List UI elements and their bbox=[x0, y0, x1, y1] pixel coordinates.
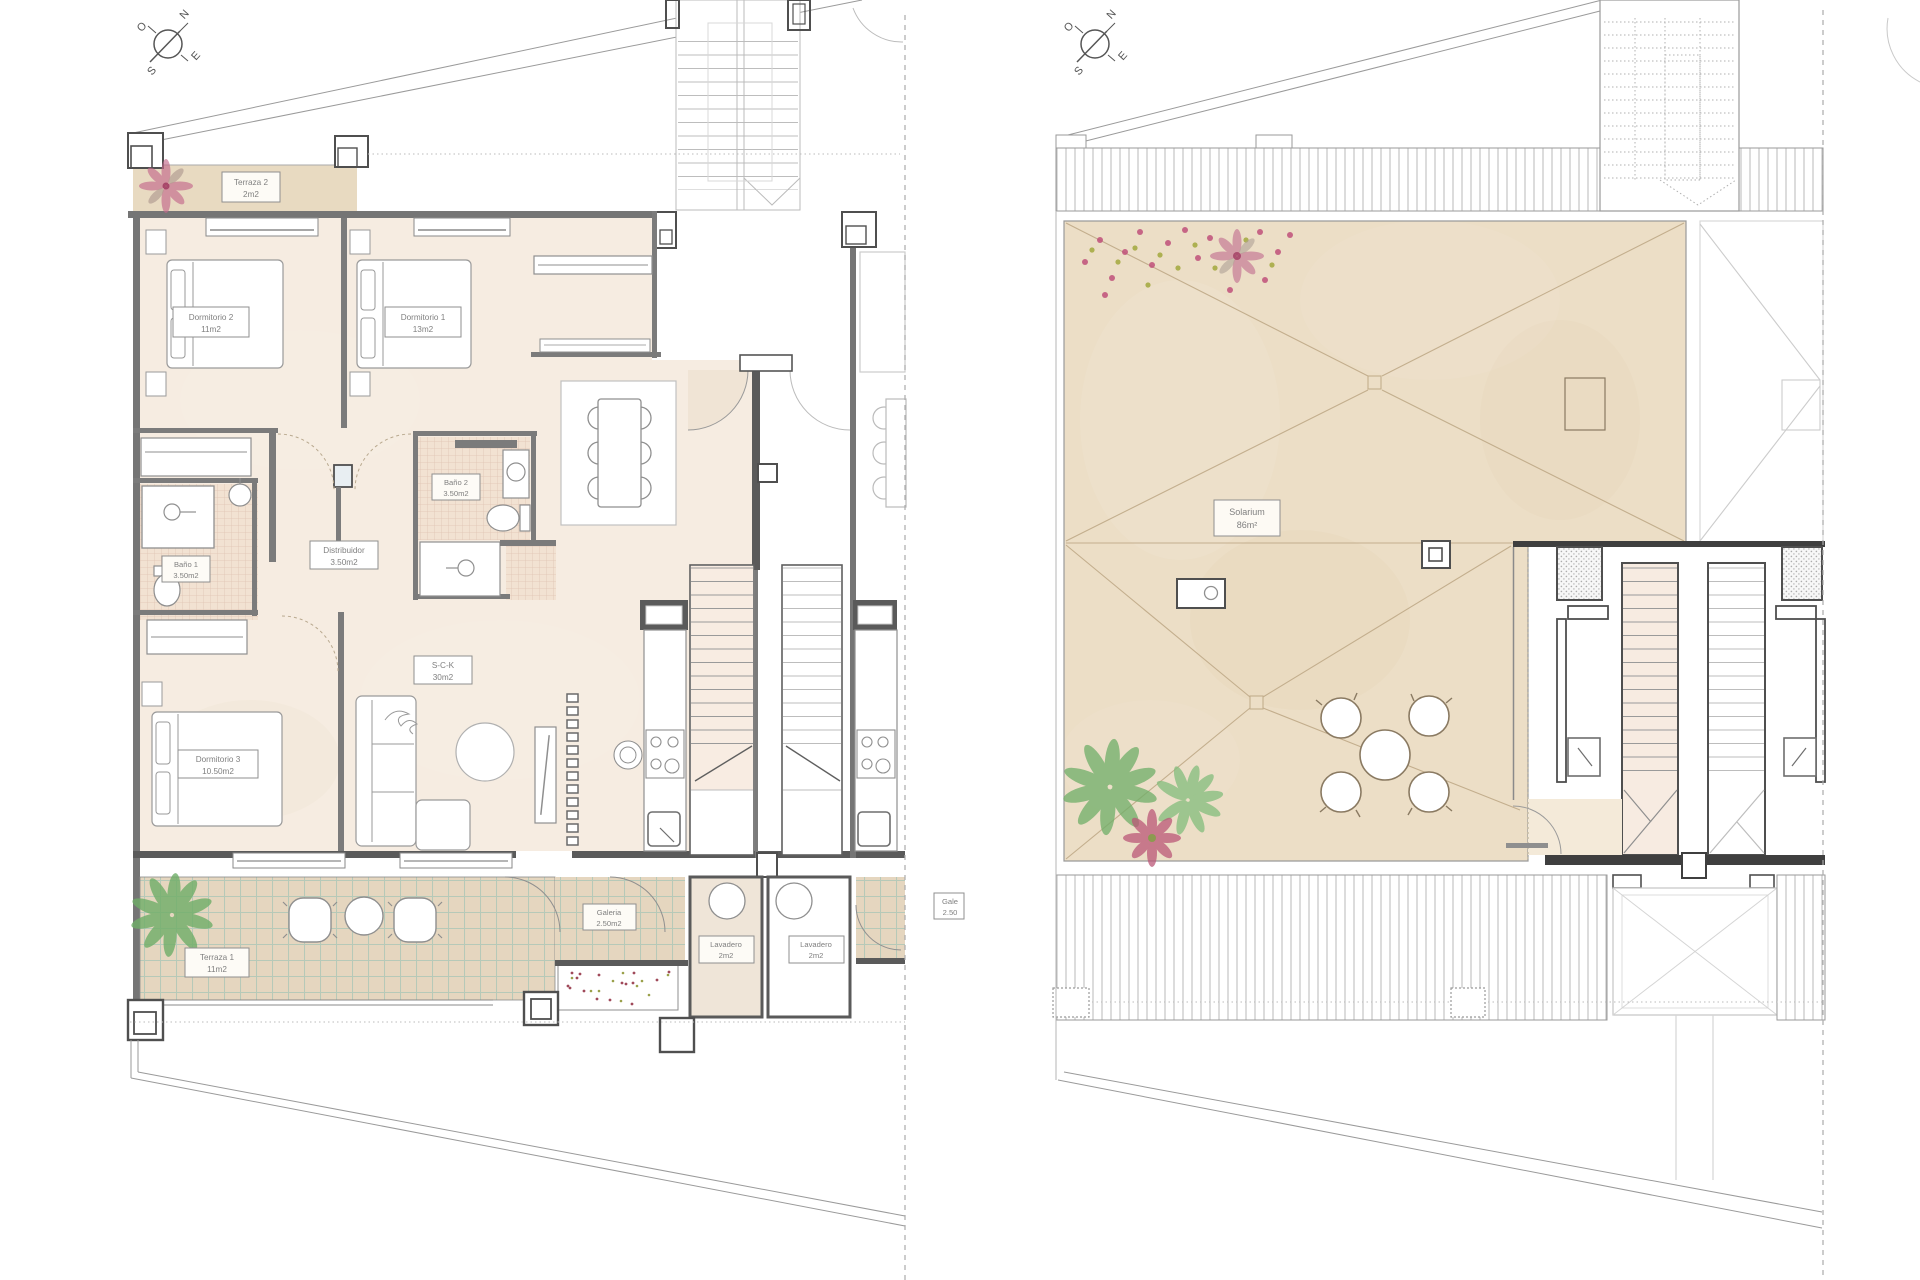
svg-text:13m2: 13m2 bbox=[413, 325, 434, 334]
svg-text:Lavadero: Lavadero bbox=[710, 940, 742, 949]
svg-text:Dormitorio 2: Dormitorio 2 bbox=[189, 313, 234, 322]
svg-text:3.50m2: 3.50m2 bbox=[330, 558, 358, 567]
svg-text:Dormitorio 1: Dormitorio 1 bbox=[401, 313, 446, 322]
svg-text:Gale: Gale bbox=[942, 897, 958, 906]
svg-text:Terraza 1: Terraza 1 bbox=[200, 953, 235, 962]
svg-text:2m2: 2m2 bbox=[719, 951, 734, 960]
svg-text:Baño 1: Baño 1 bbox=[174, 560, 198, 569]
svg-text:3.50m2: 3.50m2 bbox=[443, 489, 468, 498]
svg-text:30m2: 30m2 bbox=[433, 673, 454, 682]
svg-text:2m2: 2m2 bbox=[809, 951, 824, 960]
svg-text:Galeria: Galeria bbox=[597, 908, 622, 917]
svg-text:2.50: 2.50 bbox=[943, 908, 958, 917]
svg-text:2.50m2: 2.50m2 bbox=[596, 919, 621, 928]
svg-text:Lavadero: Lavadero bbox=[800, 940, 832, 949]
svg-text:10.50m2: 10.50m2 bbox=[202, 767, 234, 776]
svg-text:3.50m2: 3.50m2 bbox=[173, 571, 198, 580]
svg-text:Distribuidor: Distribuidor bbox=[323, 546, 365, 555]
svg-text:Solarium: Solarium bbox=[1229, 507, 1265, 517]
svg-text:2m2: 2m2 bbox=[243, 190, 259, 199]
svg-text:11m2: 11m2 bbox=[207, 965, 227, 974]
svg-text:S-C-K: S-C-K bbox=[432, 661, 455, 670]
svg-text:11m2: 11m2 bbox=[201, 325, 221, 334]
svg-text:Terraza 2: Terraza 2 bbox=[234, 178, 269, 187]
svg-text:86m²: 86m² bbox=[1237, 520, 1258, 530]
svg-text:Baño 2: Baño 2 bbox=[444, 478, 468, 487]
svg-text:Dormitorio 3: Dormitorio 3 bbox=[196, 755, 241, 764]
